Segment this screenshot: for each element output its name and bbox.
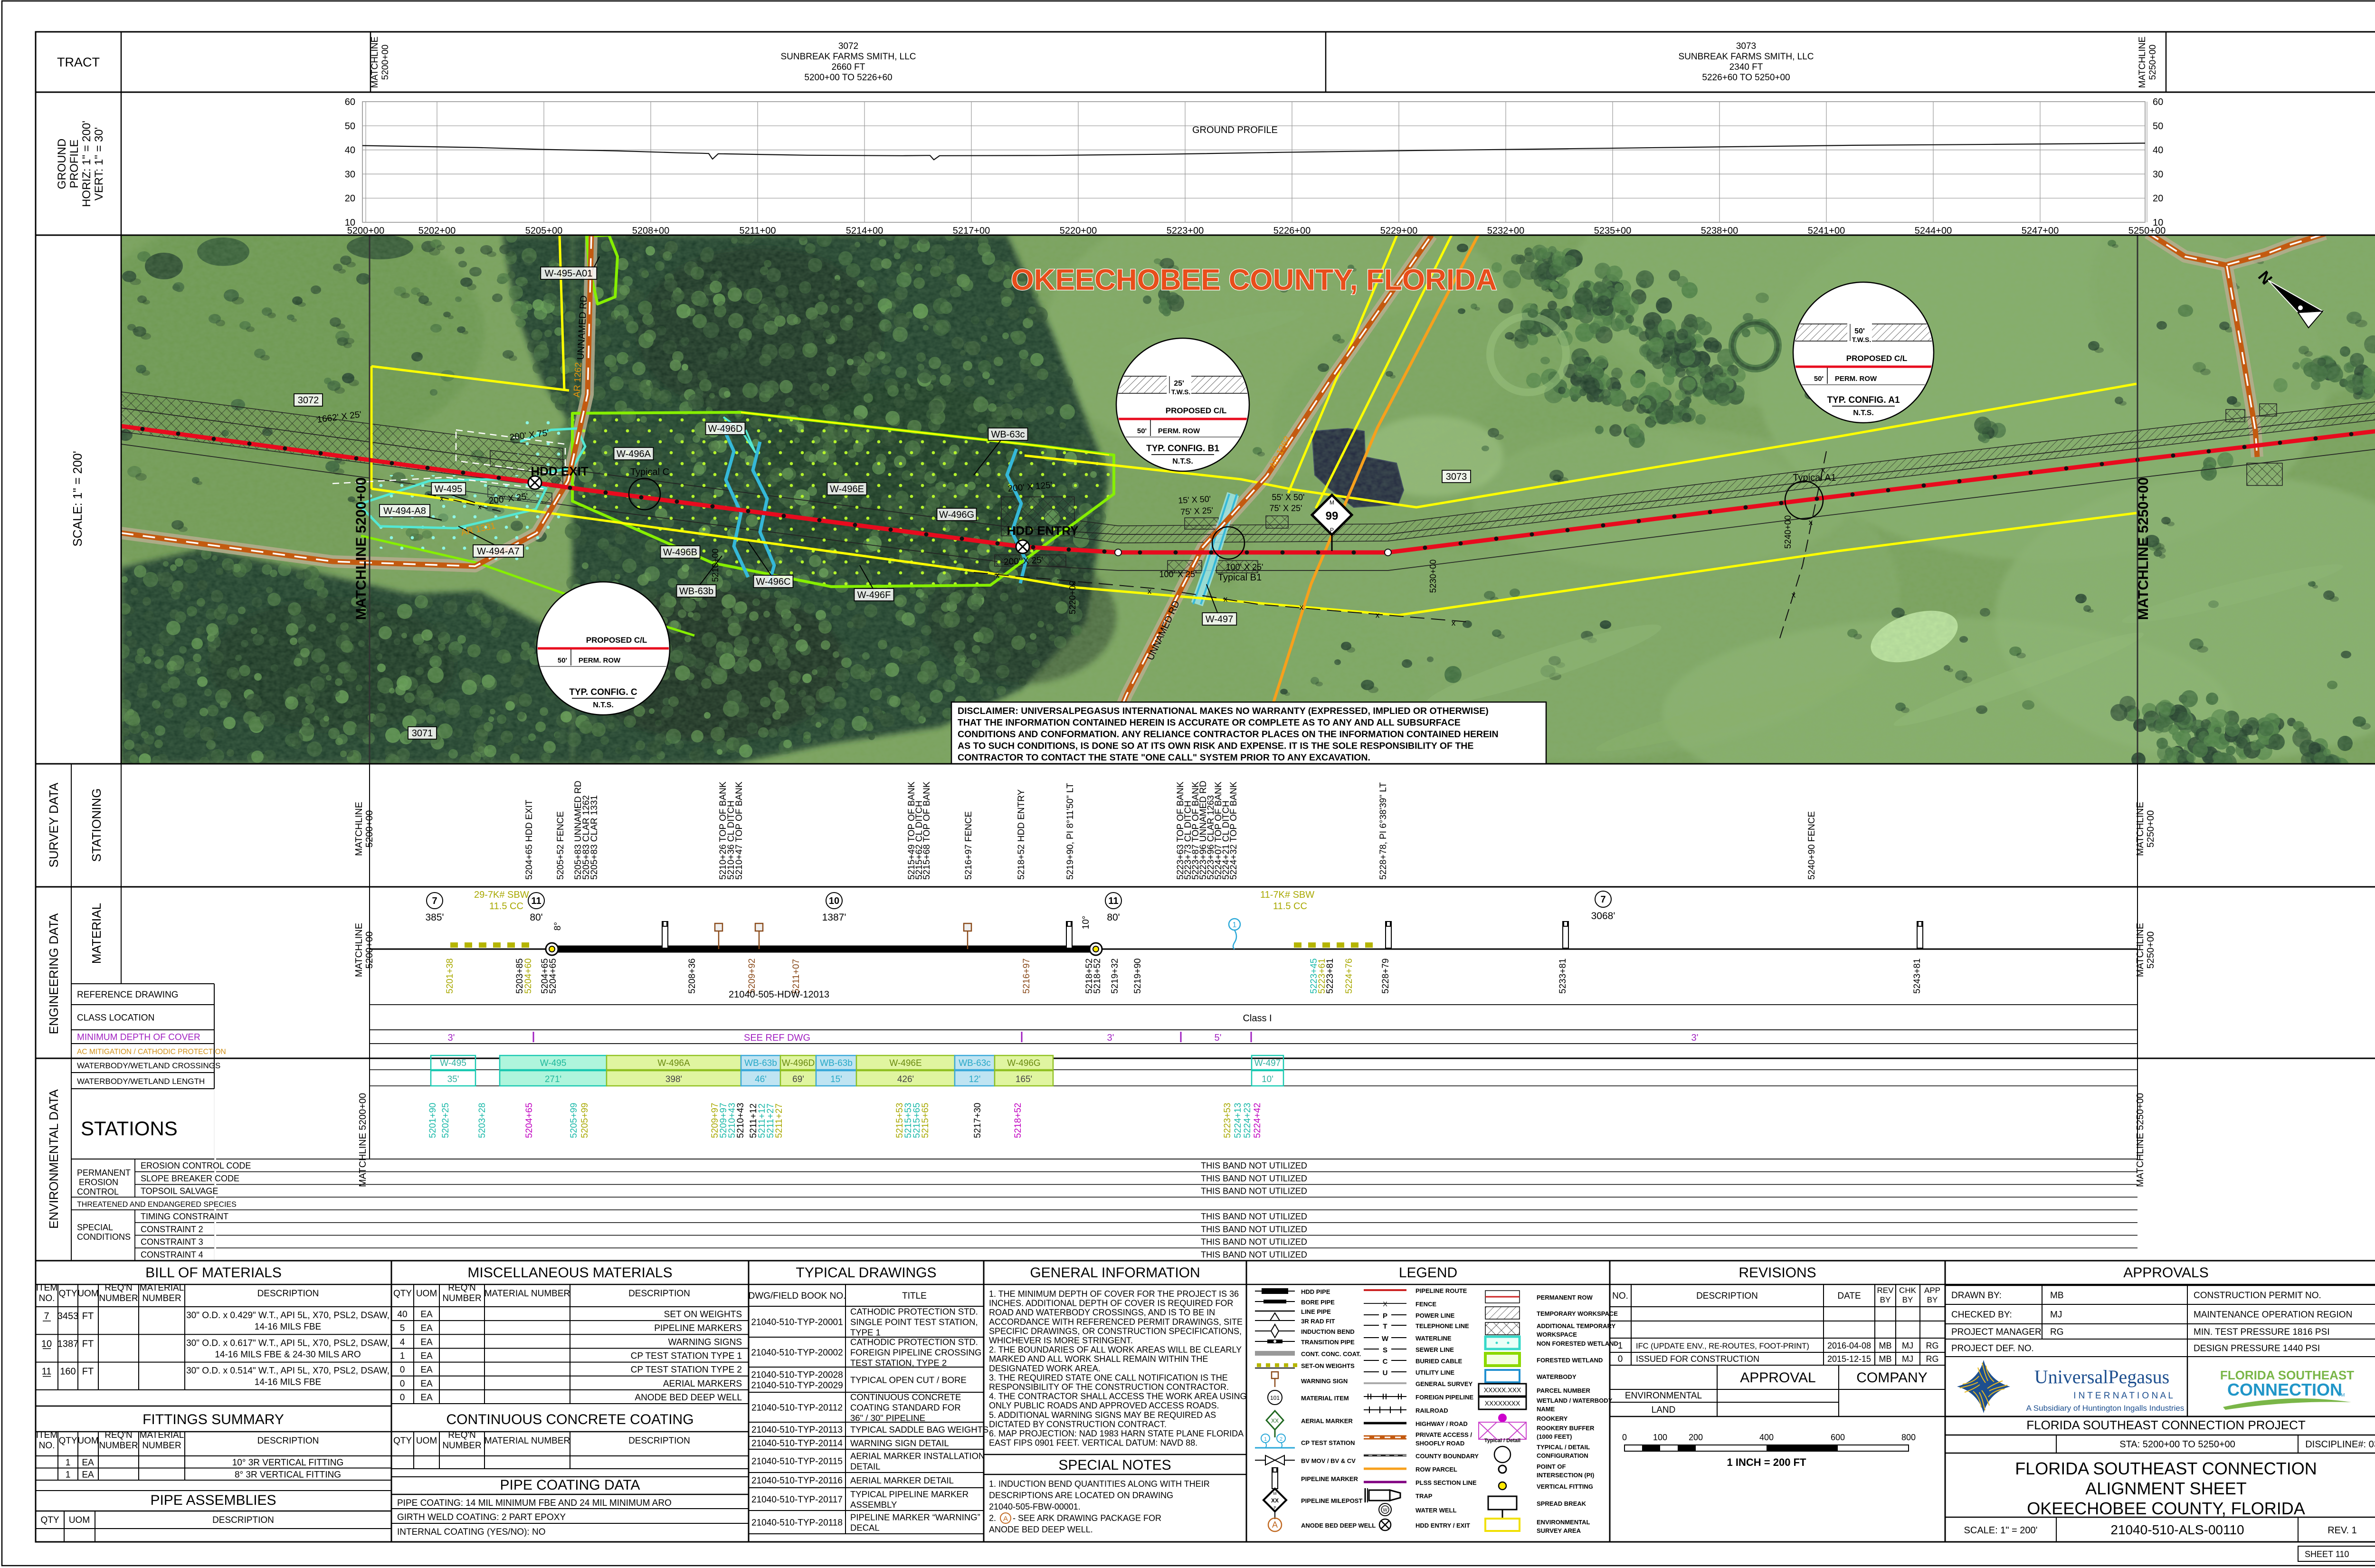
svg-text:5204+60: 5204+60	[523, 959, 533, 994]
svg-text:EROSION: EROSION	[79, 1178, 118, 1187]
svg-text:EA: EA	[82, 1458, 94, 1468]
svg-text:PROPOSED C/L: PROPOSED C/L	[1846, 354, 1907, 363]
svg-text:25': 25'	[1174, 380, 1184, 388]
svg-text:Typical A1: Typical A1	[1793, 473, 1836, 483]
svg-text:21040-510-TYP-20002: 21040-510-TYP-20002	[751, 1348, 843, 1358]
svg-text:36" / 30" PIPELINE: 36" / 30" PIPELINE	[850, 1413, 925, 1423]
svg-text:DWG/FIELD BOOK NO.: DWG/FIELD BOOK NO.	[749, 1291, 846, 1301]
svg-text:3R RAD FIT: 3R RAD FIT	[1301, 1318, 1335, 1325]
svg-text:DESCRIPTION: DESCRIPTION	[628, 1436, 690, 1446]
svg-text:REQ'N: REQ'N	[104, 1283, 133, 1293]
svg-text:4. THE CONTRACTOR SHALL ACCES: 4. THE CONTRACTOR SHALL ACCESS THE WORK …	[989, 1392, 1246, 1401]
svg-text:2: 2	[1280, 1436, 1282, 1442]
svg-text:5241+00: 5241+00	[1808, 226, 1845, 236]
svg-text:MATCHLINE 5200+00: MATCHLINE 5200+00	[358, 1093, 368, 1187]
svg-text:REFERENCE DRAWING: REFERENCE DRAWING	[77, 990, 179, 1000]
svg-text:GROUND PROFILE: GROUND PROFILE	[1192, 125, 1278, 135]
svg-text:EA: EA	[420, 1323, 433, 1333]
svg-text:3068': 3068'	[1591, 911, 1615, 922]
svg-text:MATCHLINE: MATCHLINE	[354, 923, 364, 977]
svg-text:TRACT: TRACT	[57, 55, 100, 69]
svg-text:3071: 3071	[412, 728, 433, 739]
svg-text:M: M	[1273, 1492, 1277, 1496]
svg-text:11: 11	[531, 896, 541, 906]
svg-text:11: 11	[1108, 896, 1118, 906]
svg-text:5215+65: 5215+65	[921, 1103, 931, 1139]
svg-text:NO.: NO.	[39, 1441, 55, 1451]
svg-text:NUMBER: NUMBER	[442, 1293, 481, 1303]
svg-text:5208+00: 5208+00	[632, 226, 669, 236]
svg-text:QTY: QTY	[393, 1436, 412, 1446]
svg-text:CONSTRAINT 4: CONSTRAINT 4	[141, 1250, 203, 1259]
svg-text:LINE PIPE: LINE PIPE	[1301, 1308, 1331, 1315]
svg-text:THIS BAND NOT UTILIZED: THIS BAND NOT UTILIZED	[1201, 1187, 1307, 1196]
svg-text:5200+00: 5200+00	[380, 45, 390, 80]
svg-text:WETLAND / WATERBODY: WETLAND / WATERBODY	[1537, 1397, 1613, 1404]
svg-text:21040-510-TYP-20028: 21040-510-TYP-20028	[751, 1370, 843, 1380]
svg-text:APPROVAL: APPROVAL	[1740, 1370, 1816, 1386]
svg-text:2.: 2.	[989, 1513, 996, 1523]
svg-text:5217+00: 5217+00	[953, 226, 990, 236]
svg-text:OKEECHOBEE COUNTY, FLORIDA: OKEECHOBEE COUNTY, FLORIDA	[2027, 1499, 2305, 1518]
svg-text:T.W.S.: T.W.S.	[1171, 388, 1190, 396]
svg-text:5210+47 TOP OF BANK: 5210+47 TOP OF BANK	[734, 781, 744, 880]
svg-text:200' X 25': 200' X 25'	[1004, 555, 1044, 567]
svg-text:x: x	[996, 570, 1000, 580]
svg-text:CONDITIONS AND CONFORMATION.: CONDITIONS AND CONFORMATION. ANY RELIANC…	[958, 729, 1499, 740]
svg-text:FORESTED WETLAND: FORESTED WETLAND	[1537, 1357, 1603, 1364]
svg-text:CONT. CONC. COAT.: CONT. CONC. COAT.	[1301, 1350, 1361, 1358]
svg-text:PLSS SECTION LINE: PLSS SECTION LINE	[1415, 1479, 1477, 1486]
svg-text:3. THE REQUIRED STATE ONE CAL: 3. THE REQUIRED STATE ONE CALL NOTIFICAT…	[989, 1373, 1228, 1382]
svg-text:5203+28: 5203+28	[477, 1103, 487, 1139]
svg-text:5250+00: 5250+00	[2128, 226, 2166, 236]
svg-text:NON FORESTED WETLAND: NON FORESTED WETLAND	[1537, 1340, 1618, 1347]
svg-text:x: x	[1148, 587, 1152, 596]
svg-text:SCALE: 1" = 200': SCALE: 1" = 200'	[1964, 1525, 2038, 1536]
svg-text:STA: 5200+00 TO 5250+00: STA: 5200+00 TO 5250+00	[2119, 1439, 2235, 1450]
svg-text:21040-510-TYP-20114: 21040-510-TYP-20114	[751, 1439, 843, 1449]
svg-text:WATERBODY/WETLAND LENGTH: WATERBODY/WETLAND LENGTH	[77, 1077, 205, 1086]
svg-text:W-496A: W-496A	[617, 449, 651, 459]
svg-text:LAND: LAND	[1652, 1405, 1676, 1415]
svg-text:5201+38: 5201+38	[445, 959, 455, 994]
svg-text:CHECKED BY:: CHECKED BY:	[1951, 1310, 2012, 1320]
svg-text:1. THE MINIMUM DEPTH OF COVER: 1. THE MINIMUM DEPTH OF COVER FOR THE PR…	[989, 1289, 1239, 1299]
svg-text:ASSEMBLY: ASSEMBLY	[850, 1500, 897, 1510]
svg-text:5210+43: 5210+43	[736, 1103, 746, 1139]
svg-text:MINIMUM DEPTH OF COVER: MINIMUM DEPTH OF COVER	[77, 1033, 200, 1043]
svg-text:W-494-A7: W-494-A7	[477, 546, 520, 557]
svg-text:THREATENED AND ENDANGERED SPEC: THREATENED AND ENDANGERED SPECIES	[77, 1200, 237, 1208]
svg-text:10° 3R VERTICAL FITTING: 10° 3R VERTICAL FITTING	[232, 1458, 344, 1468]
svg-text:W-495-A01: W-495-A01	[545, 268, 593, 279]
svg-text:50: 50	[2153, 121, 2163, 132]
svg-text:385': 385'	[425, 912, 444, 923]
svg-text:W-497: W-497	[1206, 614, 1234, 625]
svg-text:30" O.D. x 0.514" W.T., API 5L: 30" O.D. x 0.514" W.T., API 5L, X70, PSL…	[186, 1366, 389, 1376]
svg-text:W-495: W-495	[540, 1058, 567, 1068]
svg-text:REVISIONS: REVISIONS	[1738, 1265, 1816, 1281]
svg-text:7: 7	[44, 1311, 49, 1321]
svg-text:5202+25: 5202+25	[441, 1103, 451, 1139]
svg-text:INTERNAL COATING (YES/NO): NO: INTERNAL COATING (YES/NO): NO	[397, 1527, 545, 1537]
svg-text:W-497: W-497	[1254, 1058, 1281, 1068]
svg-text:426': 426'	[897, 1074, 914, 1084]
svg-text:5250+00: 5250+00	[2146, 931, 2156, 969]
svg-text:INDUCTION BEND: INDUCTION BEND	[1301, 1328, 1355, 1335]
svg-text:6. MAP PROJECTION: NAD 1983 H: 6. MAP PROJECTION: NAD 1983 HARN STATE P…	[989, 1429, 1244, 1438]
svg-text:FITTINGS SUMMARY: FITTINGS SUMMARY	[142, 1412, 284, 1427]
svg-text:3453: 3453	[57, 1311, 79, 1321]
svg-text:PROFILE: PROFILE	[68, 140, 81, 189]
svg-text:FLORIDA SOUTHEAST CONNECTION: FLORIDA SOUTHEAST CONNECTION	[2015, 1459, 2317, 1478]
svg-text:AC MITIGATION / CATHODIC PROTE: AC MITIGATION / CATHODIC PROTECTION	[77, 1048, 226, 1056]
svg-text:UOM: UOM	[416, 1289, 437, 1299]
svg-text:LEGEND: LEGEND	[1399, 1265, 1457, 1281]
svg-text:THIS BAND NOT UTILIZED: THIS BAND NOT UTILIZED	[1201, 1212, 1307, 1221]
svg-text:CONTINUOUS CONCRETE COATING: CONTINUOUS CONCRETE COATING	[446, 1412, 693, 1427]
svg-text:8° 3R VERTICAL FITTING: 8° 3R VERTICAL FITTING	[235, 1470, 341, 1480]
svg-text:5230+00: 5230+00	[1428, 560, 1438, 593]
svg-text:SUNBREAK FARMS SMITH, LLC: SUNBREAK FARMS SMITH, LLC	[780, 52, 916, 62]
svg-text:BY: BY	[1927, 1295, 1938, 1304]
svg-text:3': 3'	[1691, 1033, 1699, 1043]
svg-text:x: x	[1809, 518, 1813, 527]
svg-text:ACCORDANCE WITH REFERENCED PER: ACCORDANCE WITH REFERENCED PERMIT DRAWIN…	[989, 1317, 1243, 1327]
svg-text:AERIAL MARKER DETAIL: AERIAL MARKER DETAIL	[850, 1475, 954, 1485]
svg-text:PIPE COATING DATA: PIPE COATING DATA	[500, 1477, 640, 1493]
svg-text:5204+65: 5204+65	[524, 1103, 534, 1139]
svg-text:PIPELINE ROUTE: PIPELINE ROUTE	[1415, 1287, 1467, 1294]
svg-text:5220+00: 5220+00	[1068, 581, 1077, 615]
svg-text:DESCRIPTION: DESCRIPTION	[257, 1436, 319, 1446]
svg-text:EA: EA	[420, 1337, 433, 1347]
svg-text:RESPONSIBILITY OF THE CONSTRUC: RESPONSIBILITY OF THE CONSTRUCTION CONTR…	[989, 1382, 1229, 1392]
svg-text:TIMING CONSTRAINT: TIMING CONSTRAINT	[141, 1212, 228, 1221]
svg-text:100' X 25': 100' X 25'	[1159, 570, 1197, 579]
svg-text:MATCHLINE: MATCHLINE	[2135, 802, 2146, 856]
svg-text:NUMBER: NUMBER	[442, 1441, 481, 1451]
svg-text:TYPICAL OPEN CUT / BORE: TYPICAL OPEN CUT / BORE	[850, 1375, 967, 1385]
svg-text:55' X 50': 55' X 50'	[1272, 493, 1305, 502]
svg-text:DISCIPLINE#: 03: DISCIPLINE#: 03	[2305, 1439, 2375, 1450]
svg-text:600: 600	[1831, 1433, 1845, 1442]
svg-text:ANODE BED DEEP WELL: ANODE BED DEEP WELL	[1301, 1522, 1376, 1529]
svg-text:XX: XX	[1271, 1417, 1279, 1424]
svg-text:AERIAL MARKER INSTALLATION: AERIAL MARKER INSTALLATION	[850, 1451, 985, 1461]
svg-text:REQ'N: REQ'N	[448, 1430, 476, 1440]
svg-text:PIPELINE MARKERS: PIPELINE MARKERS	[654, 1323, 742, 1333]
svg-text:THIS BAND NOT UTILIZED: THIS BAND NOT UTILIZED	[1201, 1174, 1307, 1183]
svg-text:DETAIL: DETAIL	[850, 1462, 880, 1472]
svg-text:ROOKERY: ROOKERY	[1537, 1415, 1568, 1422]
svg-text:1: 1	[1264, 1436, 1267, 1442]
svg-text:GROUND: GROUND	[56, 139, 68, 190]
svg-text:PERMANENT: PERMANENT	[77, 1168, 131, 1178]
svg-text:x: x	[1792, 590, 1796, 599]
svg-text:20: 20	[2153, 193, 2163, 204]
svg-text:AS TO SUCH CONDITIONS, IS DONE: AS TO SUCH CONDITIONS, IS DONE SO AT ITS…	[958, 741, 1473, 751]
svg-text:5209+92: 5209+92	[747, 959, 757, 994]
svg-text:ROOKERY BUFFER: ROOKERY BUFFER	[1537, 1425, 1595, 1432]
svg-text:CONTRACTOR TO CONTACT THE STAT: CONTRACTOR TO CONTACT THE STATE "ONE CAL…	[958, 752, 1370, 763]
svg-text:DESIGNATED WORK AREA.: DESIGNATED WORK AREA.	[989, 1364, 1101, 1373]
svg-text:SUNBREAK FARMS SMITH, LLC: SUNBREAK FARMS SMITH, LLC	[1678, 52, 1814, 62]
svg-text:TYPICAL DRAWINGS: TYPICAL DRAWINGS	[796, 1265, 936, 1281]
svg-text:SEE REF DWG: SEE REF DWG	[744, 1033, 810, 1043]
svg-text:5219+90: 5219+90	[1133, 959, 1143, 994]
svg-text:SINGLE POINT TEST STATION,: SINGLE POINT TEST STATION,	[850, 1317, 978, 1327]
svg-text:5238+00: 5238+00	[1701, 226, 1738, 236]
svg-text:INTERSECTION (PI): INTERSECTION (PI)	[1537, 1472, 1594, 1479]
svg-text:11: 11	[42, 1367, 52, 1377]
svg-text:21040-510-TYP-20001: 21040-510-TYP-20001	[751, 1318, 843, 1328]
svg-text:MB: MB	[1879, 1341, 1892, 1350]
svg-text:1: 1	[1233, 921, 1237, 929]
svg-text:DESCRIPTION: DESCRIPTION	[1696, 1291, 1758, 1301]
svg-text:REQ'N: REQ'N	[104, 1430, 133, 1440]
svg-text:AERIAL MARKERS: AERIAL MARKERS	[663, 1379, 742, 1389]
svg-text:W-496G: W-496G	[1007, 1058, 1040, 1068]
svg-text:x: x	[1376, 610, 1380, 619]
svg-text:5217+30: 5217+30	[973, 1103, 983, 1139]
svg-text:PERM. ROW: PERM. ROW	[1835, 375, 1877, 383]
svg-text:5247+00: 5247+00	[2022, 226, 2059, 236]
svg-text:SURVEY AREA: SURVEY AREA	[1537, 1527, 1581, 1534]
svg-text:1: 1	[66, 1458, 71, 1468]
svg-text:1 INCH = 200 FT: 1 INCH = 200 FT	[1727, 1456, 1806, 1468]
svg-text:MATERIAL NUMBER: MATERIAL NUMBER	[484, 1436, 570, 1446]
svg-text:3073: 3073	[1446, 472, 1467, 482]
svg-text:WATERBODY/WETLAND CROSSINGS: WATERBODY/WETLAND CROSSINGS	[77, 1061, 220, 1070]
svg-text:MB: MB	[2050, 1291, 2064, 1301]
svg-text:MJ: MJ	[1902, 1341, 1913, 1350]
svg-text:PERMANENT ROW: PERMANENT ROW	[1537, 1294, 1593, 1301]
svg-text:50': 50'	[1814, 375, 1824, 383]
svg-text:CONSTRUCTION PERMIT: CONSTRUCTION PERMIT NO.	[2194, 1291, 2321, 1301]
svg-text:NUMBER: NUMBER	[99, 1441, 138, 1451]
svg-text:5216+97 FENCE: 5216+97 FENCE	[964, 811, 974, 880]
svg-text:12': 12'	[969, 1074, 981, 1084]
svg-text:HDD EXIT: HDD EXIT	[531, 464, 588, 478]
svg-text:50': 50'	[1854, 327, 1865, 335]
svg-text:DATE: DATE	[1837, 1291, 1861, 1301]
svg-text:80': 80'	[1107, 912, 1120, 923]
svg-text:11-7K# SBW: 11-7K# SBW	[1260, 890, 1314, 900]
svg-text:398': 398'	[665, 1074, 682, 1084]
svg-text:TRAP: TRAP	[1415, 1492, 1433, 1500]
svg-text:- SEE ARK DRAWING PACKAGE FOR: - SEE ARK DRAWING PACKAGE FOR	[1013, 1513, 1161, 1523]
svg-text:MATCHLINE 5250+00: MATCHLINE 5250+00	[2136, 477, 2151, 620]
svg-text:TRANSITION PIPE: TRANSITION PIPE	[1301, 1339, 1355, 1346]
svg-text:OKEECHOBEE COUNTY, FLORIDA: OKEECHOBEE COUNTY, FLORIDA	[1011, 264, 1497, 296]
svg-text:TYPICAL PIPELINE MARKER: TYPICAL PIPELINE MARKER	[850, 1489, 969, 1499]
svg-text:NO.: NO.	[39, 1293, 55, 1303]
svg-text:W-495: W-495	[435, 484, 463, 494]
svg-text:TYPICAL / DETAIL: TYPICAL / DETAIL	[1537, 1444, 1590, 1451]
svg-text:5211+07: 5211+07	[791, 959, 801, 994]
svg-text:Typical B1: Typical B1	[1218, 572, 1262, 583]
svg-text:REQ'N: REQ'N	[448, 1283, 476, 1293]
svg-text:DECAL: DECAL	[850, 1523, 880, 1533]
svg-text:BILL OF MATERIALS: BILL OF MATERIALS	[145, 1265, 282, 1281]
svg-text:N.T.S.: N.T.S.	[593, 701, 614, 709]
svg-text:21040-510-TYP-20115: 21040-510-TYP-20115	[751, 1457, 843, 1467]
svg-text:FT: FT	[82, 1367, 94, 1377]
svg-text:TM: TM	[2338, 1393, 2345, 1398]
svg-text:QTY: QTY	[58, 1289, 77, 1299]
svg-text:30: 30	[345, 169, 355, 180]
svg-text:PROPOSED C/L: PROPOSED C/L	[1166, 406, 1226, 415]
svg-text:5243+81: 5243+81	[1912, 959, 1922, 994]
svg-text:x: x	[1224, 595, 1228, 604]
svg-text:SET ON WEIGHTS: SET ON WEIGHTS	[664, 1310, 742, 1320]
svg-text:5200+00: 5200+00	[364, 931, 375, 969]
svg-text:5200+00: 5200+00	[347, 226, 384, 236]
svg-text:5223+81: 5223+81	[1325, 959, 1335, 994]
svg-text:Typical / Detail: Typical / Detail	[1484, 1438, 1520, 1444]
svg-text:CONDITIONS: CONDITIONS	[77, 1232, 131, 1242]
svg-text:PERM. ROW: PERM. ROW	[579, 656, 621, 665]
svg-text:2015-12-15: 2015-12-15	[1827, 1354, 1871, 1364]
svg-text:CLASS LOCATION: CLASS LOCATION	[77, 1013, 154, 1023]
svg-text:2016-04-08: 2016-04-08	[1827, 1341, 1871, 1350]
svg-text:BY: BY	[1902, 1295, 1913, 1304]
svg-text:FT: FT	[82, 1339, 94, 1349]
svg-text:XXXXXXXX: XXXXXXXX	[1485, 1399, 1520, 1407]
svg-text:165': 165'	[1016, 1074, 1032, 1084]
svg-text:HDD ENTRY: HDD ENTRY	[1007, 523, 1079, 538]
svg-text:APP: APP	[1924, 1286, 1940, 1295]
svg-text:14-16 MILS FBE: 14-16 MILS FBE	[255, 1322, 321, 1332]
svg-text:MISCELLANEOUS MATERIALS: MISCELLANEOUS MATERIALS	[467, 1265, 672, 1281]
svg-text:50': 50'	[558, 656, 567, 665]
svg-text:1: 1	[66, 1470, 71, 1480]
svg-text:CONNECTION: CONNECTION	[2227, 1380, 2342, 1399]
svg-text:W-496E: W-496E	[889, 1058, 921, 1068]
svg-text:REV: REV	[1877, 1286, 1894, 1295]
svg-text:FT: FT	[82, 1311, 94, 1321]
svg-text:21040-505-HDW-12013: 21040-505-HDW-12013	[729, 989, 829, 1000]
svg-text:WB-63b: WB-63b	[744, 1058, 777, 1068]
svg-text:10: 10	[829, 896, 839, 906]
svg-text:0: 0	[400, 1379, 405, 1389]
svg-text:RG: RG	[1926, 1341, 1939, 1350]
svg-text:THIS BAND NOT UTILIZED: THIS BAND NOT UTILIZED	[1201, 1225, 1307, 1234]
svg-text:SHEET 110: SHEET 110	[2305, 1549, 2349, 1559]
svg-text:WATER WELL: WATER WELL	[1415, 1507, 1456, 1514]
svg-text:5215+68 TOP OF BANK: 5215+68 TOP OF BANK	[922, 781, 932, 880]
svg-text:EA: EA	[420, 1365, 433, 1375]
svg-text:UOM: UOM	[77, 1289, 98, 1299]
svg-text:UTILITY LINE: UTILITY LINE	[1415, 1369, 1454, 1376]
svg-text:WARNING SIGN DETAIL: WARNING SIGN DETAIL	[850, 1438, 949, 1448]
svg-text:3072: 3072	[838, 41, 858, 51]
svg-text:UOM: UOM	[77, 1436, 98, 1446]
svg-text:THIS BAND NOT UTILIZED: THIS BAND NOT UTILIZED	[1201, 1237, 1307, 1247]
svg-text:W-496D: W-496D	[708, 424, 743, 434]
svg-text:MATCHLINE: MATCHLINE	[370, 37, 380, 88]
svg-text:ENGINEERING DATA: ENGINEERING DATA	[47, 913, 61, 1034]
svg-text:11.5 CC: 11.5 CC	[1273, 901, 1307, 912]
svg-text:W: W	[1383, 1508, 1387, 1513]
svg-text:AR 1262: AR 1262	[572, 362, 584, 398]
svg-text:MATERIAL ITEM: MATERIAL ITEM	[1301, 1395, 1349, 1402]
svg-text:TEMPORARY WORKSPACE: TEMPORARY WORKSPACE	[1537, 1310, 1618, 1317]
svg-text:5211+27: 5211+27	[774, 1103, 784, 1138]
svg-text:W-496F: W-496F	[857, 590, 891, 600]
svg-text:5250+00: 5250+00	[2146, 810, 2156, 847]
svg-text:30" O.D. x 0.617" W.T., API 5L: 30" O.D. x 0.617" W.T., API 5L, X70, PSL…	[186, 1338, 389, 1348]
svg-text:W-496A: W-496A	[657, 1058, 690, 1068]
svg-text:2340 FT: 2340 FT	[1729, 62, 1763, 72]
svg-text:WB-63c: WB-63c	[959, 1058, 991, 1068]
svg-text:U: U	[1383, 1369, 1388, 1377]
svg-text:MB: MB	[1879, 1354, 1892, 1364]
svg-text:SPECIFIC DRAWINGS, OR CONSTRUC: SPECIFIC DRAWINGS, OR CONSTRUCTION SPECI…	[989, 1326, 1242, 1336]
svg-text:21040-510-TYP-20116: 21040-510-TYP-20116	[751, 1476, 843, 1486]
svg-text:MATERIAL: MATERIAL	[140, 1430, 184, 1440]
svg-text:W-496B: W-496B	[663, 547, 697, 558]
svg-text:5205+83 CLAR 1331: 5205+83 CLAR 1331	[589, 795, 599, 880]
svg-text:271': 271'	[545, 1074, 561, 1084]
svg-text:WATERBODY: WATERBODY	[1537, 1373, 1577, 1380]
svg-text:HDD ENTRY / EXIT: HDD ENTRY / EXIT	[1415, 1522, 1470, 1529]
svg-text:5229+00: 5229+00	[1380, 226, 1417, 236]
svg-text:PIPE ASSEMBLIES: PIPE ASSEMBLIES	[150, 1492, 276, 1508]
svg-text:5. ADDITIONAL WARNING SIGNS M: 5. ADDITIONAL WARNING SIGNS MAY BE REQUI…	[989, 1410, 1216, 1420]
svg-text:5240+90 FENCE: 5240+90 FENCE	[1807, 811, 1817, 880]
svg-text:EA: EA	[420, 1310, 433, 1320]
svg-text:5202+00: 5202+00	[418, 226, 456, 236]
svg-text:MATCHLINE 5200+00: MATCHLINE 5200+00	[353, 477, 369, 620]
svg-text:ANODE BED DEEP WELL: ANODE BED DEEP WELL	[635, 1393, 742, 1403]
svg-text:5219+90, PI 8°11'50" LT: 5219+90, PI 8°11'50" LT	[1065, 783, 1075, 880]
svg-text:CP TEST STATION: CP TEST STATION	[1301, 1439, 1355, 1446]
svg-text:UniversalPegasus: UniversalPegasus	[2034, 1366, 2169, 1387]
svg-text:THAT THE INFORMATION CONTAINED: THAT THE INFORMATION CONTAINED HEREIN IS…	[958, 718, 1461, 728]
svg-text:SPECIAL NOTES: SPECIAL NOTES	[1058, 1457, 1171, 1473]
svg-text:FOREIGN PIPELINE CROSSING: FOREIGN PIPELINE CROSSING	[850, 1348, 982, 1358]
svg-text:75' X 25': 75' X 25'	[1270, 504, 1302, 513]
svg-text:AERIAL MARKER: AERIAL MARKER	[1301, 1417, 1353, 1425]
svg-text:TELEPHONE LINE: TELEPHONE LINE	[1415, 1322, 1469, 1330]
svg-text:MJ: MJ	[1902, 1354, 1913, 1364]
svg-text:21040-510-TYP-20118: 21040-510-TYP-20118	[751, 1518, 843, 1528]
svg-text:TOPSOIL SALVAGE: TOPSOIL SALVAGE	[141, 1187, 218, 1196]
svg-text:THIS BAND NOT UTILIZED: THIS BAND NOT UTILIZED	[1201, 1250, 1307, 1259]
svg-text:1387': 1387'	[822, 912, 846, 923]
svg-text:EA: EA	[420, 1393, 433, 1403]
svg-text:TEST STATION, TYPE 2: TEST STATION, TYPE 2	[850, 1358, 947, 1368]
svg-text:WB-63b: WB-63b	[820, 1058, 853, 1068]
svg-text:10: 10	[41, 1339, 52, 1349]
svg-text:MARKED AND ALL WORK SHALL REMA: MARKED AND ALL WORK SHALL REMAIN WITHIN …	[989, 1354, 1208, 1364]
svg-text:40: 40	[2153, 145, 2163, 156]
svg-text:NUMBER: NUMBER	[142, 1441, 181, 1451]
svg-text:5232+00: 5232+00	[1487, 226, 1524, 236]
svg-text:5228+79: 5228+79	[1381, 959, 1391, 994]
svg-text:PROJECT DEF. NO.: PROJECT DEF. NO.	[1951, 1344, 2034, 1354]
svg-text:A: A	[1272, 1520, 1278, 1530]
svg-text:APPROVALS: APPROVALS	[2123, 1265, 2209, 1281]
svg-text:50': 50'	[1137, 427, 1147, 435]
svg-text:46': 46'	[755, 1074, 767, 1084]
svg-text:Typical C: Typical C	[630, 467, 669, 477]
svg-text:COMPANY: COMPANY	[1856, 1370, 1927, 1386]
svg-text:XXXXX.XXX: XXXXX.XXX	[1484, 1386, 1521, 1394]
